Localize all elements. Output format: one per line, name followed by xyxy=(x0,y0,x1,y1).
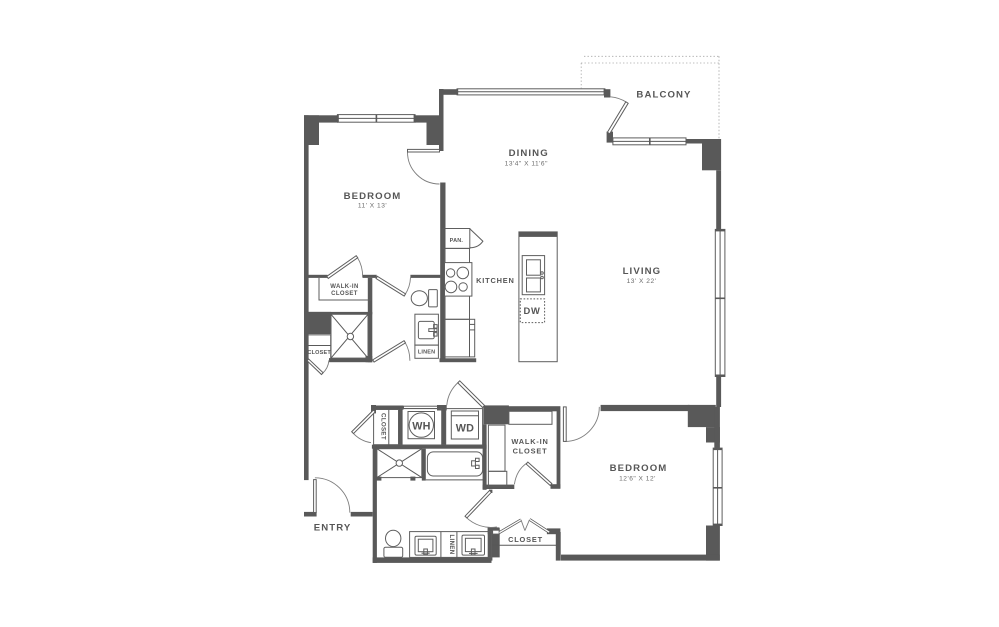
svg-text:LINEN: LINEN xyxy=(418,350,436,356)
svg-text:BEDROOM: BEDROOM xyxy=(344,191,402,202)
svg-text:LIVING: LIVING xyxy=(623,266,662,277)
svg-text:CLOSET: CLOSET xyxy=(331,291,358,297)
svg-text:BEDROOM: BEDROOM xyxy=(610,463,668,474)
svg-text:WH: WH xyxy=(412,421,430,433)
svg-text:PAN.: PAN. xyxy=(450,238,464,244)
svg-text:CLOSET: CLOSET xyxy=(513,447,548,456)
svg-text:13'4" X 11'6": 13'4" X 11'6" xyxy=(505,160,548,167)
svg-text:BALCONY: BALCONY xyxy=(636,90,691,101)
svg-text:WALK-IN: WALK-IN xyxy=(330,284,358,290)
svg-text:LINEN: LINEN xyxy=(448,534,455,554)
svg-text:WD: WD xyxy=(456,423,474,435)
svg-text:DINING: DINING xyxy=(509,148,549,159)
svg-text:KITCHEN: KITCHEN xyxy=(476,276,514,285)
svg-text:CLOSET: CLOSET xyxy=(307,350,331,356)
svg-text:CLOSET: CLOSET xyxy=(380,413,387,440)
svg-text:WALK-IN: WALK-IN xyxy=(511,437,548,446)
svg-text:12'6" X 12': 12'6" X 12' xyxy=(619,476,656,483)
svg-text:ENTRY: ENTRY xyxy=(314,522,352,533)
svg-text:13' X 22': 13' X 22' xyxy=(627,278,657,285)
svg-text:11' X 13': 11' X 13' xyxy=(358,202,387,209)
svg-text:CLOSET: CLOSET xyxy=(508,535,543,544)
svg-text:DW: DW xyxy=(523,305,540,316)
